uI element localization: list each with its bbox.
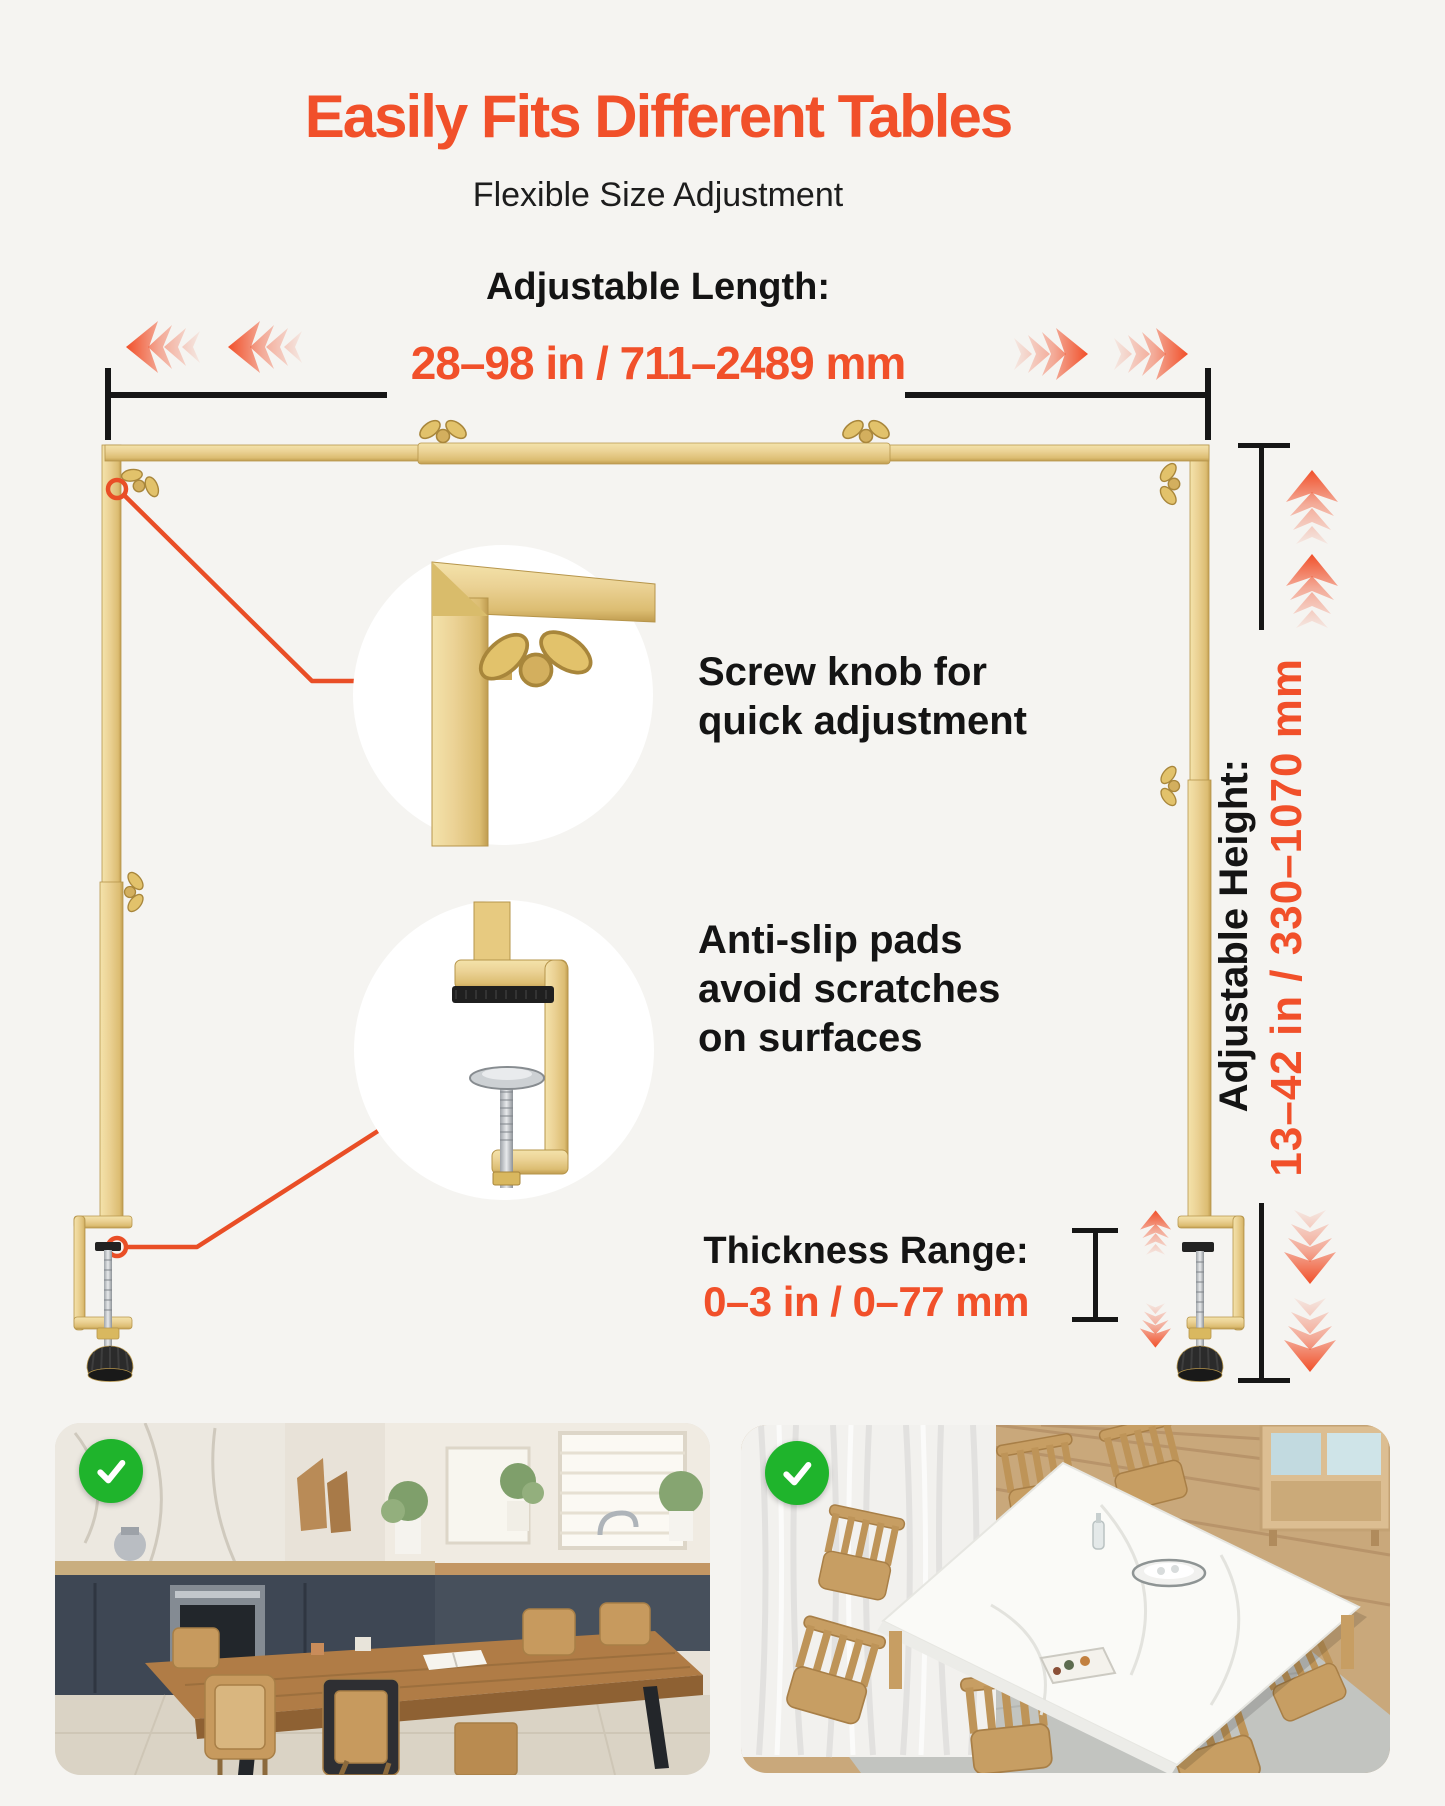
chevron-up-icon: [1286, 470, 1338, 628]
anti-slip-callout-line3: on surfaces: [698, 1014, 1000, 1063]
kitchen-table-photo: [55, 1423, 710, 1775]
chevron-down-icon: [1284, 1210, 1336, 1372]
kitchen-scene: [55, 1423, 710, 1775]
screw-knob-callout: Screw knob for quick adjustment: [698, 648, 1027, 746]
thickness-chevron-down-icon: [1140, 1303, 1171, 1347]
marble-table-photo: [741, 1425, 1390, 1773]
screw-knob-callout-line1: Screw knob for: [698, 648, 1027, 697]
screw-knob-callout-line2: quick adjustment: [698, 697, 1027, 746]
thickness-chevron-up-icon: [1140, 1210, 1171, 1254]
length-label: Adjustable Length:: [358, 266, 958, 309]
thickness-label: Thickness Range:: [660, 1228, 1072, 1276]
dining-scene: [741, 1425, 1390, 1773]
anti-slip-callout-line1: Anti-slip pads: [698, 916, 1000, 965]
anti-slip-callout: Anti-slip pads avoid scratches on surfac…: [698, 916, 1000, 1062]
right-clamp: [1177, 1216, 1244, 1382]
check-icon: [91, 1451, 131, 1491]
thickness-dimension-line: [1072, 1228, 1118, 1322]
length-value: 28–98 in / 711–2489 mm: [358, 336, 958, 390]
thickness-callout: Thickness Range: 0–3 in / 0–77 mm: [660, 1228, 1072, 1328]
height-value: 13–42 in / 330–1070 mm: [1262, 658, 1312, 1177]
thickness-value: 0–3 in / 0–77 mm: [660, 1276, 1072, 1329]
chevron-right-icon: [1014, 328, 1188, 380]
product-infographic: Easily Fits Different Tables Flexible Si…: [0, 0, 1445, 1806]
height-label: Adjustable Height:: [1212, 759, 1257, 1112]
screw-knob-detail-circle: [353, 545, 655, 846]
chevron-left-icon: [126, 321, 302, 373]
page-subtitle: Flexible Size Adjustment: [30, 176, 1286, 215]
check-badge: [765, 1441, 829, 1505]
anti-slip-callout-line2: avoid scratches: [698, 965, 1000, 1014]
anti-slip-detail-circle: [354, 900, 654, 1200]
page-title: Easily Fits Different Tables: [30, 84, 1286, 150]
check-badge: [79, 1439, 143, 1503]
gold-frame: [100, 443, 1211, 1220]
callout-leader-lines: [108, 480, 378, 1256]
check-icon: [777, 1453, 817, 1493]
